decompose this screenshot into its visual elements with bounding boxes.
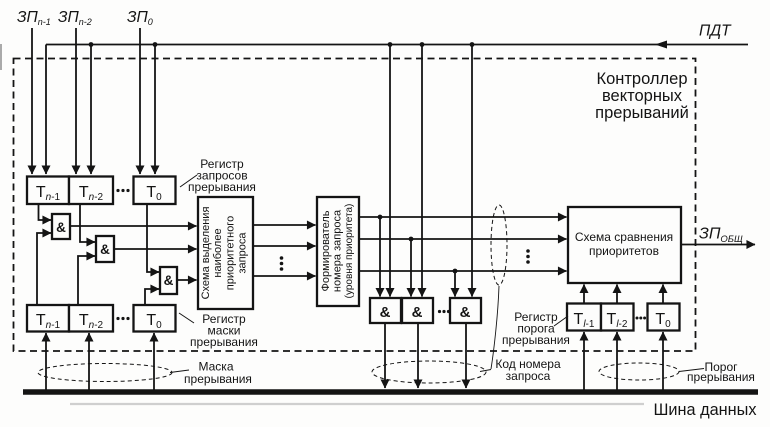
svg-text:ЗП0: ЗП0 xyxy=(127,9,153,27)
svg-text:номера запроса: номера запроса xyxy=(332,209,344,292)
svg-text:&: & xyxy=(460,304,471,321)
svg-text:прерывания: прерывания xyxy=(184,372,252,386)
svg-text:прерывания: прерывания xyxy=(188,180,256,194)
svg-text:запроса: запроса xyxy=(506,369,551,383)
svg-text:векторных: векторных xyxy=(602,87,683,105)
svg-text:(уровня приоритета): (уровня приоритета) xyxy=(344,204,355,299)
svg-text:прерывания: прерывания xyxy=(502,333,570,347)
svg-text:прерывания: прерывания xyxy=(687,370,755,384)
svg-text:ЗПn-1: ЗПn-1 xyxy=(17,9,51,27)
svg-text:Шина данных: Шина данных xyxy=(654,401,757,419)
svg-text:прерывания: прерывания xyxy=(190,335,258,349)
svg-text:&: & xyxy=(412,304,423,321)
svg-text:ЗПn-2: ЗПn-2 xyxy=(58,9,92,27)
svg-text:&: & xyxy=(164,273,174,288)
svg-text:&: & xyxy=(380,304,391,321)
svg-text:приоритетного: приоритетного xyxy=(225,216,237,290)
svg-text:Схема выделения: Схема выделения xyxy=(200,207,212,300)
svg-text:&: & xyxy=(100,242,110,257)
svg-text:&: & xyxy=(56,220,66,235)
svg-text:ЗПОБЩ: ЗПОБЩ xyxy=(699,226,743,246)
svg-text:Формирователь: Формирователь xyxy=(320,210,332,291)
svg-text:Контроллер: Контроллер xyxy=(596,70,687,88)
svg-text:приоритетов: приоритетов xyxy=(589,244,659,258)
svg-text:Схема сравнения: Схема сравнения xyxy=(575,230,673,244)
svg-text:ПДТ: ПДТ xyxy=(699,23,732,40)
svg-text:прерываний: прерываний xyxy=(595,104,689,122)
svg-text:запроса: запроса xyxy=(237,232,249,274)
svg-text:наиболее: наиболее xyxy=(212,228,224,277)
